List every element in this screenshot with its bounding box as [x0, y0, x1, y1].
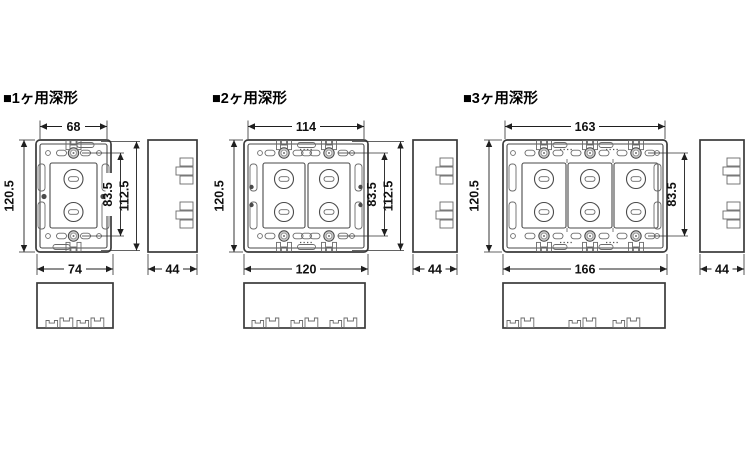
- section-2gang: ■2ヶ用深形: [212, 89, 457, 328]
- bottom-view-1gang: [37, 283, 113, 328]
- dim-2gang-depth: 44: [413, 254, 457, 277]
- section-3gang: ■3ヶ用深形: [463, 89, 744, 328]
- svg-text:163: 163: [575, 120, 596, 134]
- side-view-1gang: [148, 140, 197, 252]
- dim-3gang-height: 120.5: [468, 140, 503, 252]
- bottom-view-2gang: [244, 283, 365, 328]
- mounting-screw-icon: [68, 231, 78, 241]
- svg-text:44: 44: [166, 263, 180, 277]
- dim-1gang-depth: 44: [148, 254, 197, 277]
- svg-text:112.5: 112.5: [118, 181, 132, 212]
- svg-text:44: 44: [428, 263, 442, 277]
- svg-text:83.5: 83.5: [101, 182, 115, 206]
- dim-2gang-body-width: 114: [248, 120, 364, 139]
- front-view-3gang: [503, 140, 667, 252]
- svg-text:68: 68: [67, 120, 81, 134]
- svg-text:120.5: 120.5: [468, 180, 482, 211]
- dim-3gang-depth: 44: [700, 254, 744, 277]
- side-view-3gang: [700, 140, 744, 252]
- svg-text:83.5: 83.5: [665, 182, 679, 206]
- dim-1gang-body-width: 68: [40, 120, 107, 139]
- svg-text:120.5: 120.5: [3, 180, 17, 211]
- section-3gang-title: ■3ヶ用深形: [463, 89, 538, 107]
- dim-3gang-body-width: 163: [505, 120, 665, 139]
- dim-2gang-height: 120.5: [213, 140, 244, 252]
- svg-text:74: 74: [68, 263, 82, 277]
- side-screw-icon: [41, 194, 46, 199]
- section-1gang-title: ■1ヶ用深形: [3, 89, 78, 107]
- knockout-icon: [64, 170, 83, 189]
- bottom-view-3gang: [503, 283, 665, 328]
- svg-text:120.5: 120.5: [213, 180, 227, 211]
- svg-text:112.5: 112.5: [382, 181, 396, 212]
- svg-text:120: 120: [296, 263, 317, 277]
- dim-3gang-flange-width: 166: [503, 254, 667, 277]
- drawing-page: ■1ヶ用深形 68: [0, 0, 750, 450]
- svg-text:83.5: 83.5: [365, 182, 379, 206]
- front-view-1gang: [36, 140, 111, 252]
- dim-1gang-flange-width: 74: [37, 254, 113, 277]
- svg-text:114: 114: [296, 120, 316, 134]
- dim-2gang-flange-width: 120: [244, 254, 368, 277]
- dim-1gang-height: 120.5: [3, 140, 36, 252]
- section-1gang: ■1ヶ用深形 68: [3, 89, 198, 328]
- svg-text:166: 166: [575, 263, 596, 277]
- dim-2gang-screw-pitch: 83.5: [338, 153, 388, 236]
- technical-drawing-canvas: ■1ヶ用深形 68: [0, 0, 750, 450]
- front-view-2gang: [244, 140, 368, 252]
- section-2gang-title: ■2ヶ用深形: [212, 89, 287, 107]
- side-view-2gang: [413, 140, 457, 252]
- svg-text:44: 44: [715, 263, 729, 277]
- knockout-icon: [64, 203, 83, 222]
